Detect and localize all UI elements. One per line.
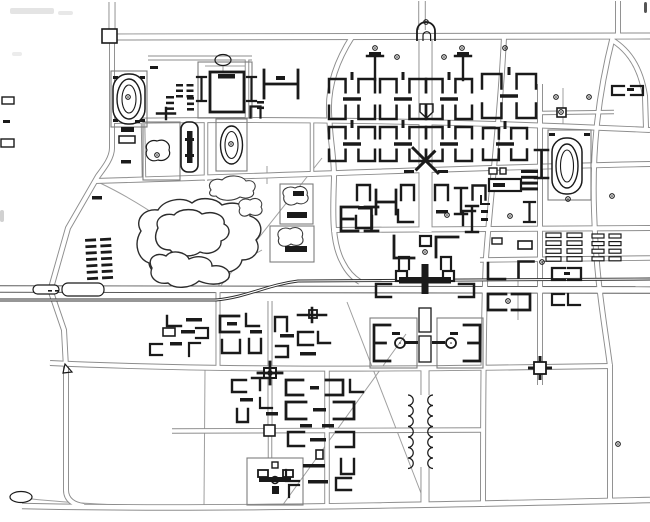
courtyard-building [519,262,534,278]
survey-dot-center [424,251,426,253]
survey-dot-center [504,47,506,49]
bar-building [481,218,488,221]
barrack-bar [100,244,111,247]
barrack-bar [85,238,96,241]
bar-building [369,52,381,55]
barrack-bar [86,258,97,261]
courtyard-building [264,70,298,98]
courtyard-building [189,343,200,356]
bar-building [285,246,307,252]
bar-building [240,398,253,402]
barrack-bar [102,270,113,273]
survey-dot-center [509,215,511,217]
building-outline [283,470,293,477]
greenhouse [546,233,561,238]
barrack-bar [521,187,538,190]
bar-building [250,330,262,334]
barrack-bar [100,238,111,241]
bar-building [300,424,312,428]
barrack-bar [166,107,174,110]
quad-core [440,97,458,101]
bar-building [140,119,145,122]
quad-block [455,106,472,119]
bar-building [450,332,458,335]
bar-building [257,107,264,110]
building-outline [33,285,59,294]
courtyard-building [286,402,306,419]
courtyard-building [568,294,580,305]
greenhouse [567,233,582,238]
road-surface [51,37,112,288]
barrack-bar [86,251,97,254]
bar-building [546,367,552,370]
courtyard-building [401,185,414,200]
bar-building [185,154,194,157]
courtyard-building [398,210,413,222]
bar-building [564,272,570,275]
road-surface [103,36,650,37]
courtyard-building [288,432,304,446]
bar-building [438,170,448,173]
bar-building [121,127,134,132]
greenhouse [609,257,621,261]
bar-building [627,88,634,91]
survey-dot-center [567,198,569,200]
quad-block [517,103,536,118]
quad-core [343,142,361,146]
scanned-campus-plan-page [0,0,650,522]
bar-building [432,341,445,344]
greenhouse [609,249,621,253]
footpath-line [204,370,205,506]
courtyard-building [298,332,313,345]
courtyard-building [473,186,486,200]
survey-dot-center [555,96,557,98]
bar-building [113,119,118,122]
bar-building [358,206,371,210]
scan-smudge [58,11,73,15]
bar-building [584,133,590,136]
bar-building [293,191,304,196]
bar-building [55,290,59,292]
courtyard-building [435,185,448,200]
courtyard-building [336,478,351,490]
courtyard-building [350,380,363,392]
bar-building [493,183,505,187]
greenhouse [567,249,582,254]
quad-block [380,106,397,119]
survey-dot-center [507,300,509,302]
courtyard-building [222,340,240,353]
scan-smudge [12,52,22,56]
survey-dot-center [425,21,427,23]
bar-building [257,101,264,104]
courtyard-building [367,56,383,80]
running-track-infield [225,132,238,159]
quad-block [455,150,472,161]
courtyard-building [196,328,208,338]
bar-building [300,352,316,356]
barrack-bar [176,90,183,93]
bar-building [92,196,102,200]
bar-building [392,332,400,335]
quad-block [380,127,397,138]
survey-dot-center [461,47,463,49]
footpath-line [347,302,426,506]
survey-dot-center [396,56,398,58]
greenhouse [546,241,561,246]
courtyard-building [318,332,330,343]
building-outline [1,139,14,147]
bar-building [181,330,195,334]
courtyard-building [374,325,390,361]
quad-block [358,150,375,161]
scan-smudge [0,210,4,222]
scan-smudge [10,8,54,14]
sketch-detail [10,492,32,503]
bar-building [422,264,429,294]
quad-core [394,142,412,146]
survey-dot-center [399,342,401,344]
quad-block [358,127,375,138]
road-surface [332,228,650,230]
building-outline [119,136,135,143]
survey-dot-center [446,214,448,216]
barrack-bar [101,263,112,266]
courtyard-building [275,317,287,331]
building-outline [492,238,502,244]
quad-core [394,97,412,101]
courtyard-building [286,380,303,395]
bar-building [227,322,237,326]
courtyard-building [376,190,396,214]
bar-building [308,480,328,484]
quad-stem [351,72,354,80]
quad-stem [351,120,354,128]
barrack-bar [85,245,96,248]
bar-building [310,386,319,390]
tree-grove [278,228,303,247]
building-outline [264,425,275,436]
building-outline [272,462,278,468]
survey-dot-center [588,96,590,98]
courtyard-building [356,216,372,228]
courtyard-building [341,459,354,474]
bar-building [405,341,418,344]
barrack-bar [521,170,538,173]
barrack-bar [187,90,194,93]
bar-building [121,160,131,164]
courtyard-building [524,202,535,222]
bar-building [272,486,279,494]
courtyard-building [336,432,354,447]
bar-building [457,52,469,55]
bar-building [322,424,334,428]
bar-building [187,108,194,111]
survey-dot-center [269,372,271,374]
building-outline [316,450,323,459]
bar-building [528,367,534,370]
greenhouse [609,242,621,246]
bar-building [549,133,555,136]
bar-building [481,210,488,213]
bar-building [187,131,193,163]
courtyard-building [436,237,458,257]
courtyard-building [612,86,624,95]
quad-block [358,79,375,92]
courtyard-building [150,344,162,355]
greenhouse [592,242,604,246]
greenhouse [592,249,604,253]
building-outline [420,236,431,246]
lake-island [156,210,229,256]
building-outline [163,328,175,336]
quad-core [440,142,458,146]
quad-stem [504,121,507,129]
building-outline [500,168,506,174]
survey-dot-center [127,96,129,98]
building-outline [62,283,104,296]
road-surface [51,292,84,506]
quad-stem [508,67,511,75]
bar-building [287,212,307,218]
courtyard-building [232,380,246,392]
quad-stem [448,72,451,80]
greenhouse [592,234,604,238]
scan-smudge [644,2,647,13]
courtyard-building [249,339,261,353]
courtyard-building [289,485,299,497]
barrack-bar [187,84,194,87]
courtyard-building [512,294,530,310]
quad-core [500,94,518,98]
tree-grove [239,199,262,216]
greenhouse [567,241,582,246]
barrack-bar [521,176,538,179]
survey-dot-center [450,342,452,344]
tree-grove [209,176,255,200]
courtyard-building [246,314,259,326]
bar-building [539,356,542,362]
building-outline [102,29,117,43]
barrack-bar [166,96,174,99]
survey-dot-center [611,195,613,197]
quad-stem [448,120,451,128]
campus-plan-svg [0,0,650,522]
greenhouse [546,249,561,254]
courtyard-building [488,263,505,279]
courtyard-building [455,56,471,80]
bar-building [187,103,194,106]
building-outline [518,241,532,249]
building-outline [258,470,268,477]
barrack-bar [166,102,174,105]
survey-dot-center [443,56,445,58]
barrack-bar [102,276,113,279]
quad-block [517,74,536,89]
barrack-bar [87,277,98,280]
bar-building [280,334,294,338]
courtyard-building [441,257,451,269]
bar-building [140,76,145,79]
courtyard-building [252,378,268,390]
bar-building [539,374,542,380]
bar-building [310,438,326,442]
road-surface [612,40,646,128]
courtyard-building [357,185,370,200]
bar-building [3,120,10,123]
bar-building [186,318,202,322]
road-surface [480,258,650,260]
barrack-bar [176,95,183,98]
greenhouse [592,257,604,261]
survey-dot-center [541,261,543,263]
survey-dot-center [230,143,232,145]
courtyard-building [552,294,564,305]
greenhouse [567,257,582,262]
courtyard-building [464,325,480,361]
bar-building [170,342,182,346]
barrack-bar [87,270,98,273]
courtyard-building [394,236,414,258]
quad-stem [402,120,405,128]
bar-building [48,290,52,292]
greenhouse [546,257,561,262]
courtyard-building [167,316,181,326]
building-outline [534,362,546,374]
courtyard-building [237,409,248,422]
courtyard-building [488,294,506,310]
survey-dot-center [374,47,376,49]
bar-building [135,120,140,123]
quad-block [380,150,397,161]
bar-building [313,408,326,412]
bar-building [404,170,414,173]
barrack-bar [176,84,183,87]
bar-building [113,76,118,79]
building-outline [489,168,497,174]
bar-building [303,464,325,468]
quad-block [511,128,527,139]
quad-block [358,106,375,119]
compound-wall [143,122,180,180]
quad-block [455,127,472,138]
building-outline [419,308,431,332]
survey-dot-center [156,154,158,156]
building-outline [419,336,431,362]
bar-building [218,74,235,79]
bar-building [266,412,278,416]
bar-building [276,76,285,80]
bar-building [150,66,158,69]
survey-dot-center [560,111,562,113]
bar-building [185,138,194,141]
quad-block [511,149,527,160]
road-surface [540,112,614,113]
courtyard-building [276,346,288,357]
barrack-bar [86,264,97,267]
courtyard-building [298,308,326,322]
quad-core [343,97,361,101]
quad-stem [402,72,405,80]
barrack-bar [101,257,112,260]
barrack-bar [187,95,194,98]
barrack-bar [101,250,112,253]
barrack-bar [521,182,538,185]
quad-block [380,79,397,92]
survey-dot-center [274,479,276,481]
quad-core [496,142,514,146]
building-outline [2,97,14,104]
greenhouse [609,234,621,238]
survey-dot-center [617,443,619,445]
